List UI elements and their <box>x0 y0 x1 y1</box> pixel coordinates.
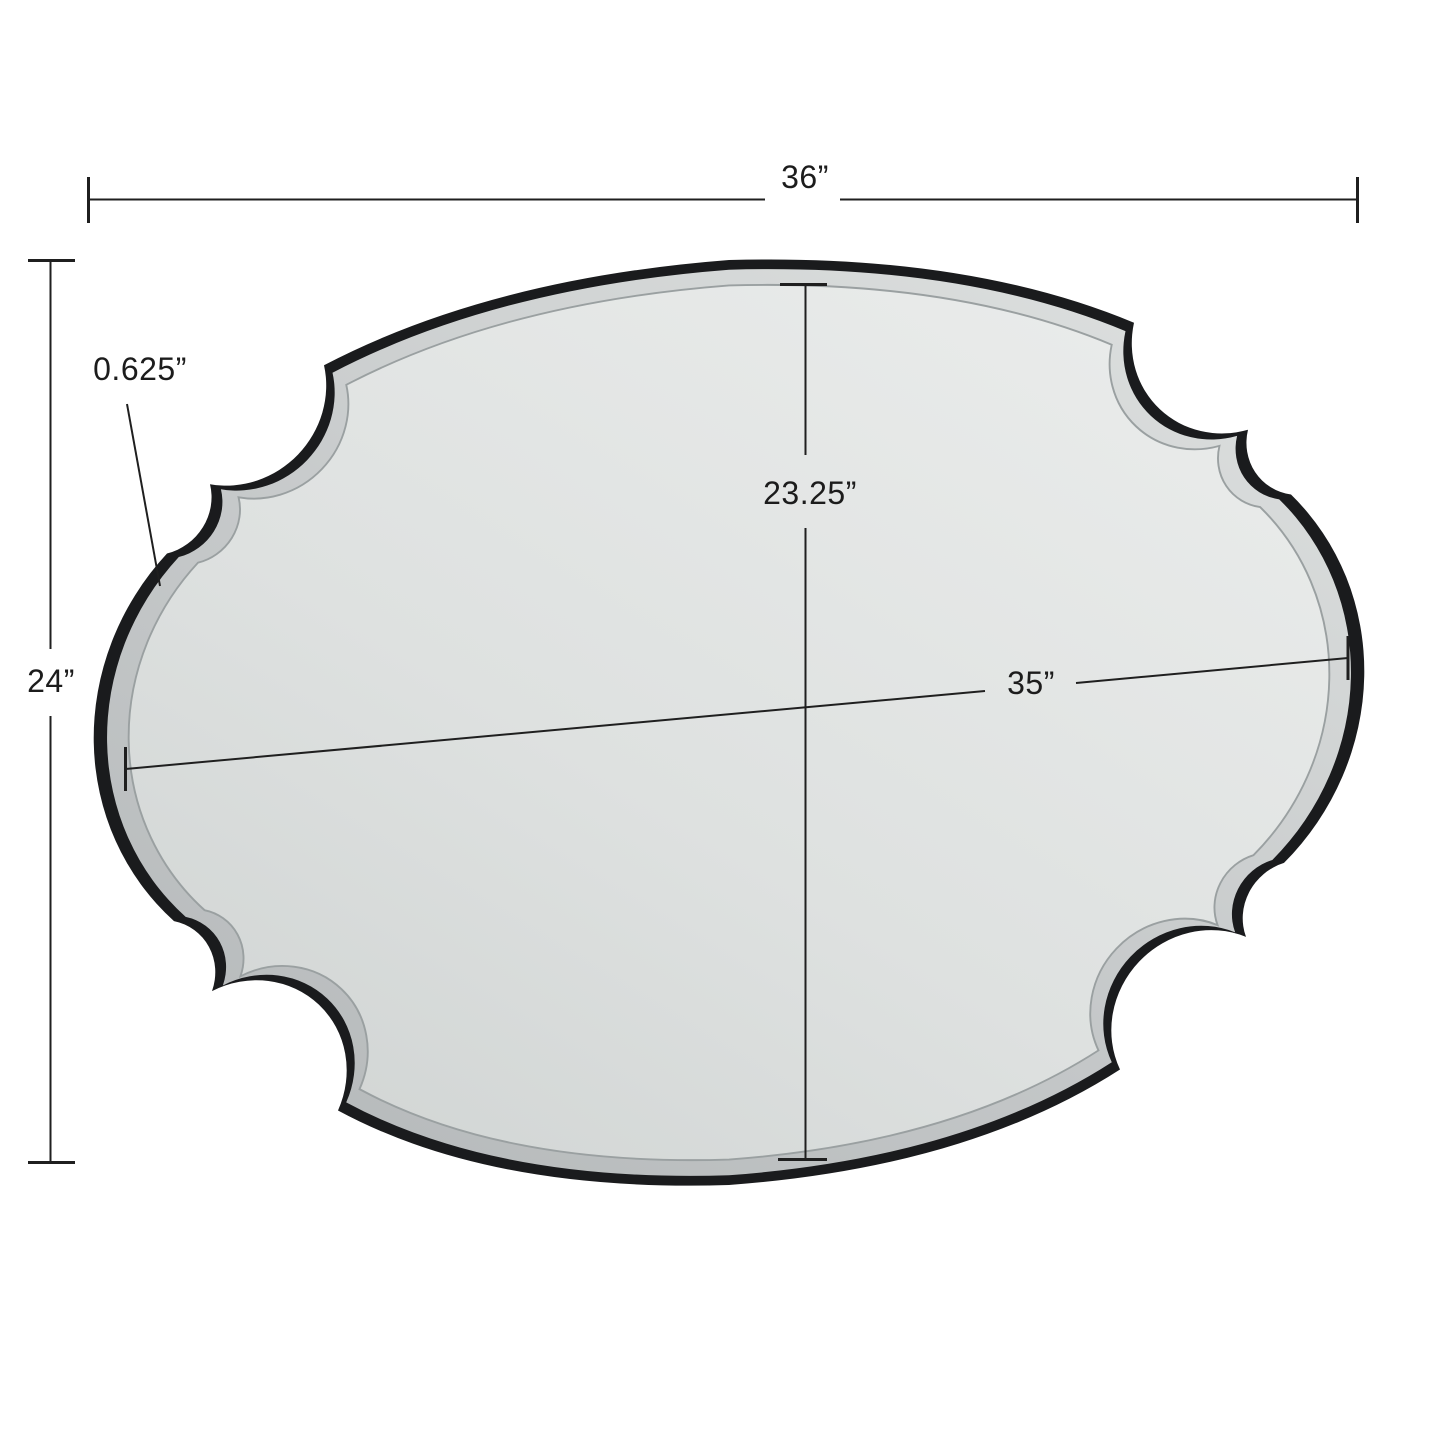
glass-height-dimension <box>778 284 827 1160</box>
outer-width-dimension <box>88 177 1358 223</box>
glass-width-label: 35” <box>1007 667 1055 699</box>
dimension-lines <box>0 0 1445 1445</box>
frame-depth-leader-line <box>127 404 160 586</box>
glass-width-line-right <box>1076 658 1348 683</box>
frame-depth-label: 0.625” <box>93 353 187 385</box>
glass-width-dimension <box>125 636 1348 791</box>
outer-width-label: 36” <box>781 161 829 193</box>
product-dimension-diagram: 36” 24” 0.625” 23.25” 35” <box>0 0 1445 1445</box>
outer-height-dimension <box>28 260 75 1163</box>
outer-height-label: 24” <box>27 665 75 697</box>
glass-width-line-left <box>125 691 985 769</box>
frame-depth-dimension <box>127 404 160 586</box>
glass-height-label: 23.25” <box>763 477 857 509</box>
